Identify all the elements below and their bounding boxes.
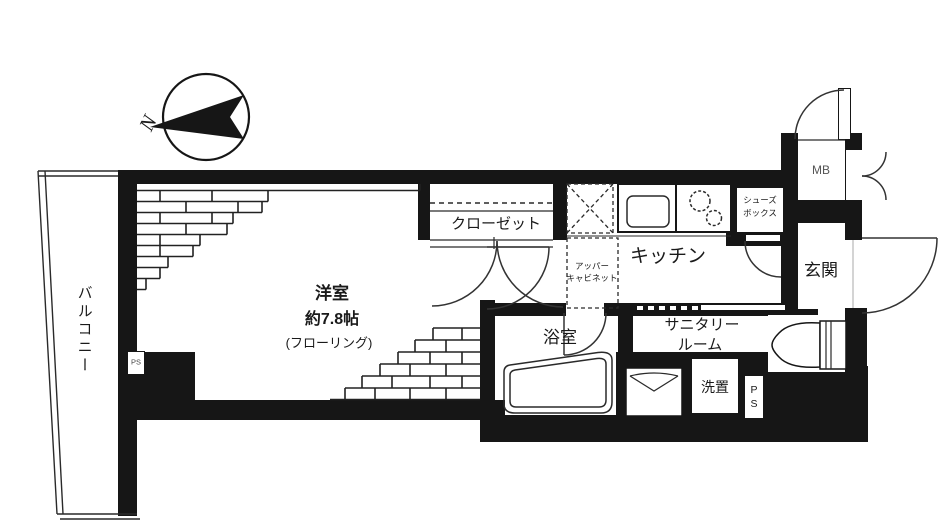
balcony-label: バルコニー bbox=[75, 285, 92, 375]
pipe-space-room-label: PS bbox=[131, 359, 141, 368]
upper-cabinet-label-line2: キャビネット bbox=[566, 274, 617, 284]
pipe-space-sanitary-line1: P bbox=[750, 384, 757, 396]
bathroom-label: 浴室 bbox=[543, 328, 577, 348]
laundry-label: 洗置 bbox=[701, 379, 729, 395]
shoes-box-label-line2: ボックス bbox=[743, 209, 777, 219]
mb-door-bottom-arc bbox=[862, 176, 886, 200]
main-room-floor-type: (フローリング) bbox=[286, 337, 373, 352]
entrance-hall-door bbox=[745, 241, 781, 277]
mb-door-top-arc bbox=[862, 152, 886, 176]
upper-cabinet-label-line1: アッパー bbox=[575, 262, 609, 272]
meter-box-label: MB bbox=[812, 164, 830, 178]
entrance-door bbox=[862, 238, 937, 313]
pipe-space-sanitary-line2: S bbox=[750, 398, 757, 410]
entrance-label: 玄関 bbox=[804, 261, 838, 281]
floor-plan: N バルコニー 洋室 約7.8帖 (フローリング) クローゼット キッチン アッ… bbox=[0, 0, 952, 529]
main-room-name: 洋室 bbox=[315, 284, 349, 304]
toilet-icon bbox=[772, 321, 846, 369]
north-arrow-icon bbox=[150, 74, 249, 160]
closet-door-right-arc bbox=[497, 241, 563, 307]
shoes-box-label-line1: シューズ bbox=[743, 196, 777, 206]
sanitary-room-label-line1: サニタリー bbox=[664, 316, 739, 333]
sanitary-room-label-line2: ルーム bbox=[678, 336, 723, 353]
main-room-size: 約7.8帖 bbox=[305, 311, 359, 329]
upper-door-arc bbox=[795, 90, 844, 139]
closet-label: クローゼット bbox=[451, 215, 541, 232]
closet-door-left-arc bbox=[432, 241, 497, 306]
kitchen-label: キッチン bbox=[630, 246, 706, 268]
room-door bbox=[487, 247, 549, 309]
bathtub-icon bbox=[504, 352, 612, 413]
washbasin-icon bbox=[626, 368, 682, 416]
brick-accent-top-left bbox=[137, 184, 420, 290]
refrigerator-icon bbox=[567, 184, 613, 233]
